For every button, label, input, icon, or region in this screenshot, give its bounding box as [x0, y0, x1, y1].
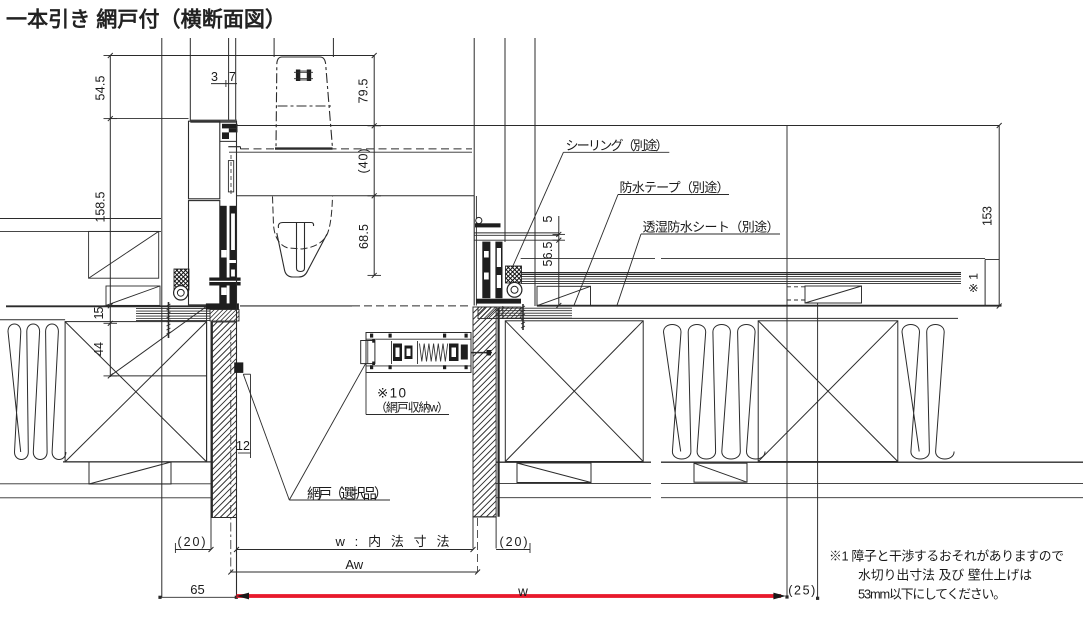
svg-text:w: w — [517, 584, 528, 599]
svg-text:水切り出寸法 及び 壁仕上げは: 水切り出寸法 及び 壁仕上げは — [858, 568, 1032, 583]
svg-text:5: 5 — [541, 215, 555, 222]
svg-text:158.5: 158.5 — [94, 191, 108, 222]
svg-text:53mm以下にしてください。: 53mm以下にしてください。 — [858, 587, 1006, 602]
svg-text:44: 44 — [92, 342, 106, 356]
svg-text:一本引き 網戸付（横断面図）: 一本引き 網戸付（横断面図） — [6, 8, 286, 32]
svg-text:54.5: 54.5 — [94, 75, 108, 100]
svg-text:3: 3 — [211, 70, 218, 84]
svg-text:15: 15 — [92, 306, 106, 319]
svg-text:68.5: 68.5 — [357, 224, 371, 249]
svg-text:（網戸収納w）: （網戸収納w） — [375, 401, 449, 415]
svg-text:※10: ※10 — [377, 386, 406, 401]
svg-text:12: 12 — [236, 439, 250, 453]
svg-text:79.5: 79.5 — [357, 78, 371, 103]
svg-text:153: 153 — [981, 206, 995, 226]
svg-text:65: 65 — [190, 582, 204, 597]
svg-text:網戸（選択品）: 網戸（選択品） — [307, 486, 388, 502]
svg-text:(25): (25) — [788, 584, 815, 598]
svg-text:シーリング（別途）: シーリング（別途） — [566, 138, 669, 153]
svg-text:防水テープ（別途）: 防水テープ（別途） — [620, 180, 730, 195]
svg-text:※1 障子と干渉するおそれがありますので: ※1 障子と干渉するおそれがありますので — [829, 549, 1064, 564]
svg-text:7: 7 — [229, 70, 236, 84]
svg-text:56.5: 56.5 — [541, 241, 555, 266]
svg-text:透湿防水シート（別途）: 透湿防水シート（別途） — [643, 220, 780, 235]
svg-text:Aw: Aw — [345, 557, 363, 572]
